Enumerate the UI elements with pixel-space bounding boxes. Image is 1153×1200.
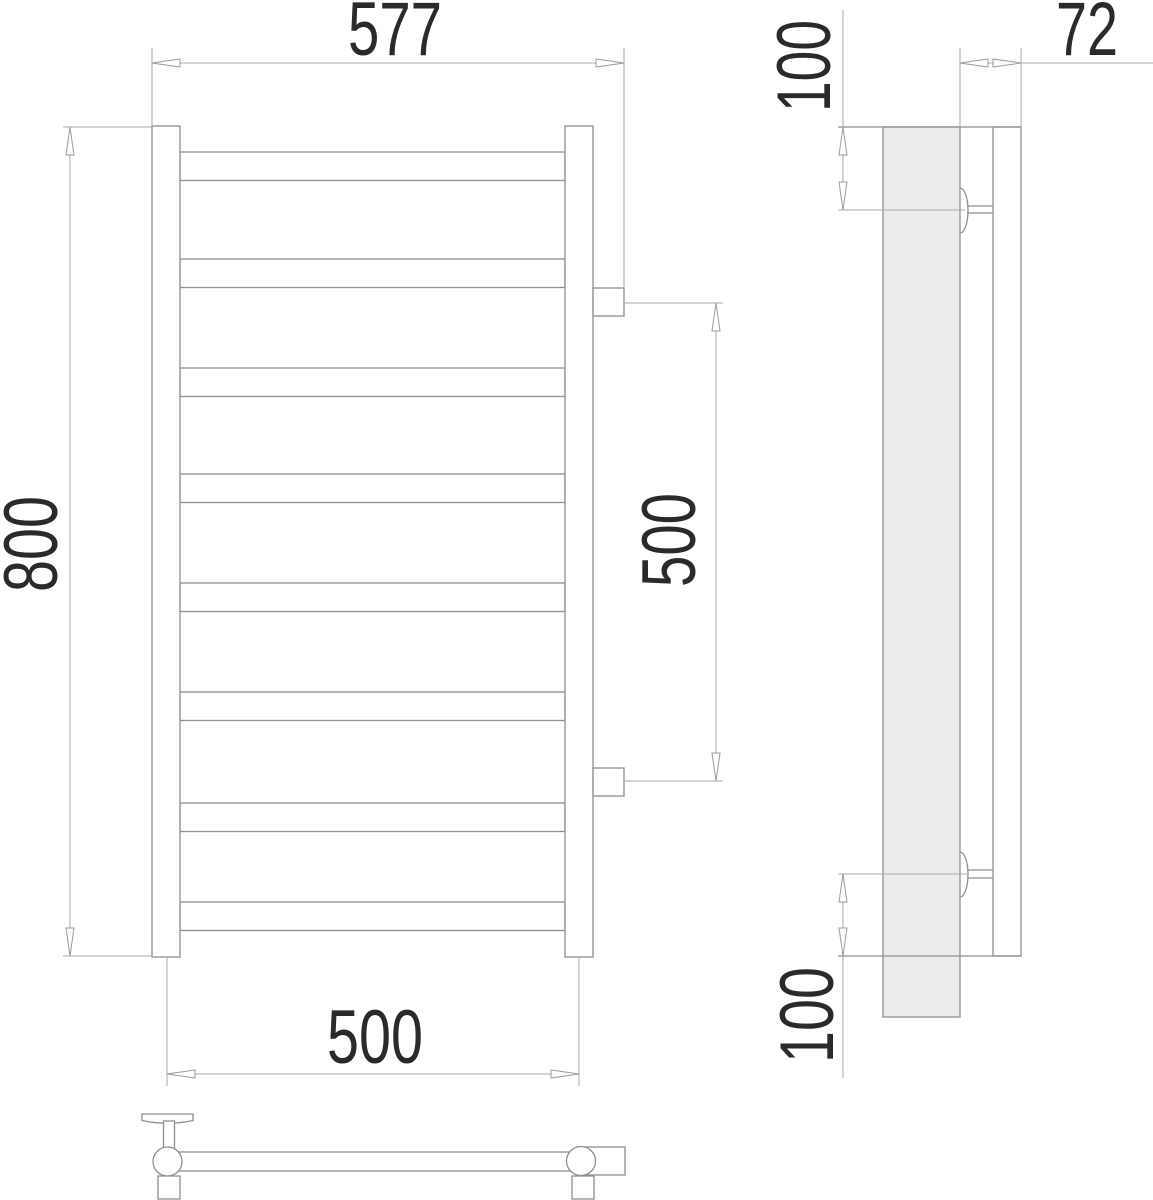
bottom-rung-tube [167, 1152, 582, 1171]
right-post [565, 126, 593, 957]
dim-depth: 72 [960, 0, 1153, 126]
top-view [142, 1114, 625, 1199]
post-profile [993, 127, 1021, 956]
side-view: 72 100 100 [762, 0, 1153, 1078]
arrowhead-right [993, 59, 1021, 67]
depth-label: 72 [1056, 0, 1118, 72]
rung-1 [180, 152, 565, 181]
arrowhead-top [839, 127, 847, 155]
connection-spacing-label: 500 [627, 493, 712, 587]
rung-6 [180, 692, 565, 721]
rung-4 [180, 474, 565, 503]
arrowhead-top [712, 303, 720, 331]
arrowhead-bottom [66, 928, 74, 956]
right-post-section [567, 1147, 596, 1176]
right-post-cap [572, 1176, 594, 1199]
left-post-cap [158, 1176, 180, 1199]
front-view: 577 800 500 500 [0, 0, 723, 1086]
rung-2 [180, 259, 565, 288]
dim-bottom-width: 500 [167, 958, 579, 1086]
arrowhead-right [596, 59, 624, 67]
wall-section [883, 127, 960, 1017]
rung-3 [180, 368, 565, 397]
top-connection-stub [593, 288, 624, 316]
overall-width-label: 577 [348, 0, 442, 72]
dim-overall-width: 577 [152, 0, 624, 288]
dim-connection-spacing: 500 [624, 303, 723, 781]
rung-5 [180, 583, 565, 612]
bracket-stem [164, 1121, 175, 1149]
towel-rail-technical-drawing: 577 800 500 500 [0, 0, 1153, 1200]
left-post [152, 126, 180, 957]
bottom-connection-stub [593, 768, 624, 796]
arrowhead-left [167, 1070, 195, 1078]
dim-height: 800 [0, 127, 152, 956]
height-label: 800 [0, 496, 74, 592]
rung-8 [180, 902, 565, 931]
drawing-canvas: 577 800 500 500 [0, 0, 1153, 1200]
arrowhead-top [66, 127, 74, 155]
arrowhead-left [960, 59, 988, 67]
arrowhead-left [152, 59, 180, 67]
arrowhead-top [839, 874, 847, 902]
top-offset-label: 100 [762, 20, 847, 112]
bottom-width-label: 500 [327, 995, 423, 1080]
bottom-offset-label: 100 [765, 967, 850, 1063]
arrowhead-bottom [839, 928, 847, 956]
arrowhead-bottom [839, 182, 847, 210]
arrowhead-right [551, 1070, 579, 1078]
rung-7 [180, 803, 565, 832]
left-post-section [153, 1147, 182, 1176]
arrowhead-bottom [712, 753, 720, 781]
